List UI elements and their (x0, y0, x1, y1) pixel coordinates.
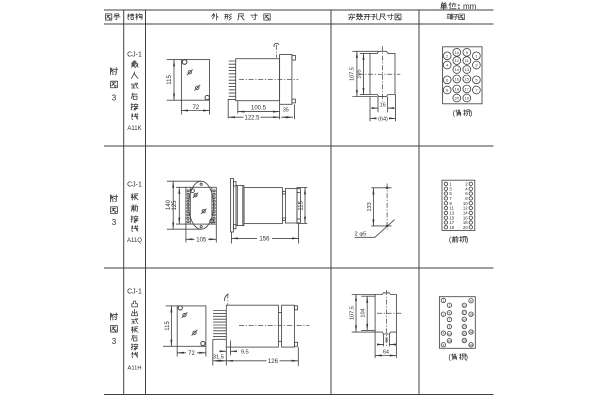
svg-text:107.5: 107.5 (349, 306, 355, 320)
svg-text:72: 72 (188, 351, 195, 357)
svg-text:CJ-1: CJ-1 (127, 289, 142, 296)
svg-text:105: 105 (356, 69, 362, 78)
svg-text:10: 10 (469, 312, 473, 316)
svg-text:11: 11 (465, 58, 469, 63)
svg-text:9: 9 (449, 325, 451, 329)
svg-text:3: 3 (475, 63, 477, 68)
svg-text:5: 5 (449, 311, 451, 315)
svg-text:18: 18 (463, 339, 467, 343)
svg-text:3: 3 (112, 218, 117, 227)
svg-text:1: 1 (443, 299, 445, 303)
svg-text:): ) (466, 235, 469, 244)
svg-text:16: 16 (455, 77, 459, 82)
svg-text:14: 14 (463, 325, 467, 329)
svg-text:107.5: 107.5 (350, 67, 356, 81)
svg-text:19: 19 (465, 96, 469, 101)
svg-text:19: 19 (463, 317, 467, 321)
svg-text:126: 126 (268, 359, 279, 365)
svg-text:A11K: A11K (127, 126, 141, 132)
svg-text:(64): (64) (378, 116, 388, 122)
svg-text:CJ-1: CJ-1 (127, 51, 142, 58)
svg-text:8: 8 (470, 299, 472, 303)
svg-text:16: 16 (463, 332, 467, 336)
svg-text:156: 156 (259, 236, 270, 242)
svg-text:9: 9 (466, 50, 468, 55)
svg-text:20: 20 (455, 96, 460, 101)
svg-text:14: 14 (455, 67, 460, 72)
svg-text:4: 4 (446, 63, 449, 68)
svg-text:A11Q: A11Q (127, 238, 142, 244)
svg-text:7: 7 (475, 88, 477, 93)
svg-text:12: 12 (455, 58, 459, 63)
svg-text:(: ( (449, 235, 452, 244)
svg-text:20: 20 (469, 343, 473, 347)
svg-text:17: 17 (465, 87, 469, 92)
svg-text:122.5: 122.5 (244, 116, 260, 122)
svg-text:133: 133 (367, 202, 373, 211)
svg-text:10: 10 (455, 50, 460, 55)
svg-text:16: 16 (380, 102, 386, 108)
svg-text:15: 15 (463, 303, 467, 307)
svg-text:17: 17 (463, 311, 467, 315)
svg-text:(: ( (448, 353, 451, 362)
svg-text:A11H: A11H (127, 366, 141, 372)
svg-text:): ) (470, 109, 473, 118)
svg-text:35: 35 (283, 108, 289, 114)
svg-text:105: 105 (196, 237, 207, 243)
svg-text:11: 11 (448, 332, 451, 336)
svg-text:115: 115 (165, 321, 171, 331)
svg-text:140: 140 (166, 199, 172, 210)
svg-text:72: 72 (192, 105, 199, 111)
svg-text:3: 3 (449, 303, 451, 307)
svg-text:20: 20 (463, 225, 468, 230)
svg-text:18: 18 (455, 87, 459, 92)
svg-text:): ) (466, 353, 469, 362)
svg-text:1: 1 (475, 53, 477, 58)
svg-text:3: 3 (112, 337, 117, 346)
svg-text:31.5: 31.5 (213, 355, 224, 361)
svg-text:(: ( (453, 109, 456, 118)
svg-text:64: 64 (383, 350, 389, 356)
svg-text:8: 8 (446, 88, 448, 93)
svg-text:12: 12 (469, 330, 473, 334)
svg-text:3: 3 (112, 93, 117, 102)
svg-text:115: 115 (167, 75, 173, 85)
svg-text:115: 115 (298, 200, 304, 210)
svg-text:9.5: 9.5 (241, 349, 249, 355)
svg-text:mm: mm (463, 2, 477, 11)
svg-text:125: 125 (172, 200, 178, 211)
svg-text:5: 5 (475, 77, 477, 82)
svg-text:13: 13 (465, 67, 469, 72)
svg-text:16: 16 (384, 337, 389, 343)
svg-text:6: 6 (446, 77, 448, 82)
svg-text:CJ-1: CJ-1 (127, 182, 142, 189)
svg-text:104: 104 (360, 308, 366, 317)
svg-text:100.5: 100.5 (251, 106, 267, 112)
svg-text:2: 2 (443, 312, 445, 316)
svg-text:4: 4 (443, 331, 445, 335)
svg-text:15: 15 (465, 77, 469, 82)
svg-text:2 φ5: 2 φ5 (355, 231, 367, 237)
svg-text:6: 6 (443, 343, 445, 347)
svg-text:7: 7 (449, 318, 451, 322)
svg-text:2: 2 (446, 53, 448, 58)
svg-text:13: 13 (448, 339, 452, 343)
svg-text:19: 19 (449, 225, 454, 230)
